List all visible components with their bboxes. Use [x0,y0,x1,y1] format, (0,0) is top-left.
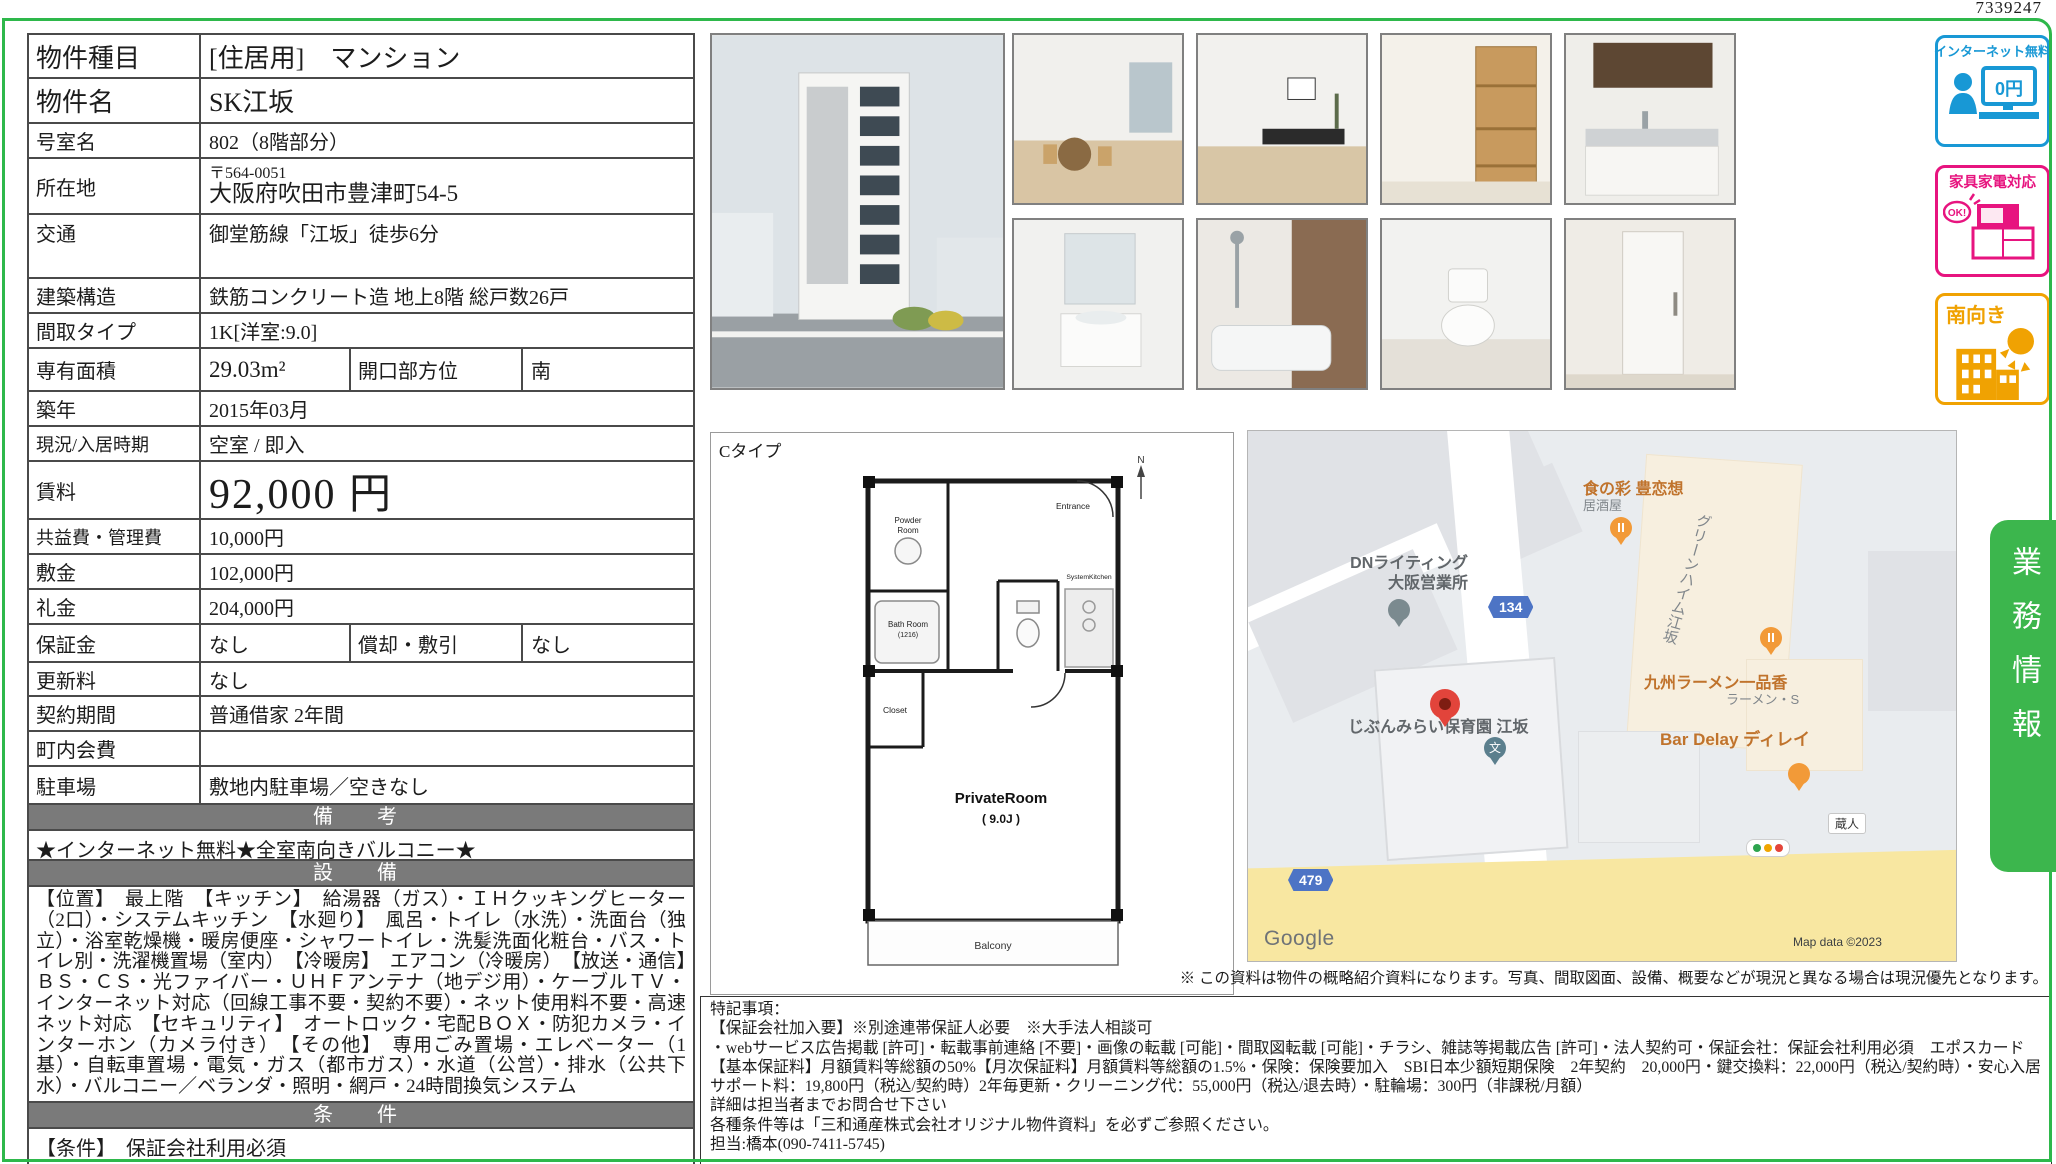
joken-text: 【条件】 保証会社利用必須 [29,1129,693,1164]
row-value [201,732,693,765]
traffic-light-red-dot [1775,844,1783,852]
photo-closet [1380,33,1552,205]
biko-text: ★インターネット無料★全室南向きバルコニー★ [29,831,693,861]
table-row: 保証金 なし 償却・敷引 なし [29,625,693,663]
table-row: 物件種目 [住居用] マンション [29,35,693,79]
row-label: 契約期間 [29,697,201,730]
special-notes-box: 特記事項： 【保証会社加入要】※別途連帯保証人必要 ※大手法人相談可 ・webサ… [700,996,2052,1164]
map-building-property [1374,657,1569,861]
map-label-ramen-sub: ラーメン・S [1726,689,1799,708]
badge-south-facing: 南向き [1935,293,2050,405]
row-value: なし [201,663,693,695]
dn-office-pin-icon [1388,599,1410,621]
notes-line: ・webサービス広告掲載 [許可]・転載事前連絡 [不要]・画像の転載 [可能]… [710,1039,2042,1097]
table-row: 駐車場 敷地内駐車場／空きなし [29,767,693,805]
bar-pin-icon [1788,763,1810,785]
internet-0yen-icon: 0円 [1943,60,2043,132]
row-label: 共益費・管理費 [29,520,201,553]
traffic-light-icon [1746,839,1790,857]
map-label-dn-line2: 大阪営業所 [1306,569,1468,593]
table-row: 号室名 802（8階部分） [29,124,693,159]
table-row: 町内会費 [29,732,693,767]
map-building-block [1868,551,1957,711]
table-row: 共益費・管理費 10,000円 [29,520,693,555]
furniture-ok-icon: OK! [1943,192,2043,264]
svg-text:OK!: OK! [1947,208,1965,219]
address-text: 大阪府吹田市豊津町54-5 [209,182,458,206]
row-value: SK江坂 [201,79,693,122]
photo-kitchen [1564,33,1736,205]
section-header-biko: 備 考 [29,805,693,831]
row-value: 204,000円 [201,590,693,623]
bathroom-art [1198,220,1366,388]
row-label-2: 償却・敷引 [351,625,523,661]
table-row: 築年 2015年03月 [29,392,693,427]
living-room-1-art [1014,35,1182,203]
row-value: 102,000円 [201,555,693,588]
badge-south-label: 南向き [1946,299,2006,328]
table-row: 専有面積 29.03m² 開口部方位 南 [29,349,693,392]
row-label-2: 開口部方位 [351,349,523,390]
svg-text:Room: Room [897,526,919,535]
photo-washbasin [1012,218,1184,390]
notes-line: 【保証会社加入要】※別途連帯保証人必要 ※大手法人相談可 [710,1019,2042,1038]
table-row: 所在地 〒564-0051 大阪府吹田市豊津町54-5 [29,159,693,215]
row-value: 御堂筋線「江坂」徒歩6分 [201,215,693,277]
section-header-joken: 条 件 [29,1103,693,1129]
google-logo: Google [1264,927,1335,951]
row-value-2: 南 [523,349,693,390]
row-value: 空室 / 即入 [201,427,693,460]
izakaya-restaurant-pin-icon [1610,517,1632,539]
badge-internet-free: インターネット無料 0円 [1935,35,2050,147]
notes-line-contact: 担当:橋本(090-7411-5745) [710,1135,2042,1154]
svg-text:N: N [1137,455,1144,466]
school-pin-icon: 文 [1484,737,1506,759]
row-value: 29.03m² [201,349,351,390]
table-row: 敷金 102,000円 [29,555,693,590]
svg-text:SystemKitchen: SystemKitchen [1066,574,1112,581]
photo-bathroom [1196,218,1368,390]
table-row: 賃料 92,000 円 [29,462,693,520]
traffic-light-amber-dot [1764,844,1772,852]
floorplan-type-label: Cタイプ [719,437,781,462]
row-value: [住居用] マンション [201,35,693,77]
badge-furniture-label: 家具家電対応 [1949,171,2036,192]
setsubi-text: 【位置】 最上階 【キッチン】 給湯器（ガス）・ＩＨクッキングヒーター（2口）・… [29,887,693,1103]
row-value-2: なし [523,625,693,661]
document-serial-number: 7339247 [1976,0,2043,18]
property-sheet-page: 7339247 物件種目 [住居用] マンション 物件名 SK江坂 号室名 80… [0,0,2056,1164]
photo-building-exterior [710,33,1005,390]
row-label: 賃料 [29,462,201,518]
row-label: 所在地 [29,159,201,213]
row-label: 保証金 [29,625,201,661]
location-map: DNライティング 大阪営業所 134 食の彩 豊恋想 居酒屋 グリーンハイム江坂… [1247,430,1957,962]
map-attribution: Map data ©2023 [1793,935,1882,949]
postal-code: 〒564-0051 [209,166,286,183]
kitchen-art [1566,35,1734,203]
row-label: 築年 [29,392,201,425]
row-value: 敷地内駐車場／空きなし [201,767,693,803]
row-value: 2015年03月 [201,392,693,425]
row-label: 更新料 [29,663,201,695]
row-label: 敷金 [29,555,201,588]
photo-living-room-2 [1196,33,1368,205]
table-row: 更新料 なし [29,663,693,697]
table-row: 間取タイプ 1K[洋室:9.0] [29,314,693,349]
table-row: 礼金 204,000円 [29,590,693,625]
map-label-kurando: 蔵人 [1828,813,1866,834]
entrance-hall-art [1566,220,1734,388]
row-label: 交通 [29,215,201,277]
badge-furniture-appliance: 家具家電対応 OK! [1935,165,2050,277]
row-label: 号室名 [29,124,201,157]
table-row: 契約期間 普通借家 2年間 [29,697,693,732]
row-label: 駐車場 [29,767,201,803]
washbasin-art [1014,220,1182,388]
svg-text:Balcony: Balcony [974,940,1012,952]
row-value: 鉄筋コンクリート造 地上8階 総戸数26戸 [201,279,693,312]
south-facing-sun-icon [1946,328,2050,400]
table-row: 建築構造 鉄筋コンクリート造 地上8階 総戸数26戸 [29,279,693,314]
photo-toilet [1380,218,1552,390]
svg-text:( 9.0J ): ( 9.0J ) [982,812,1020,826]
rent-value: 92,000 円 [201,462,693,518]
living-room-2-art [1198,35,1366,203]
photo-living-room-1 [1012,33,1184,205]
business-info-label: 業務情報 [2001,520,2045,872]
svg-text:Closet: Closet [883,705,908,715]
map-label-bar-delay: Bar Delay ディレイ [1660,725,1810,750]
svg-text:Entrance: Entrance [1056,501,1090,511]
property-table: 物件種目 [住居用] マンション 物件名 SK江坂 号室名 802（8階部分） … [27,33,695,1164]
row-label: 礼金 [29,590,201,623]
svg-text:(1216): (1216) [898,632,918,639]
svg-text:PrivateRoom: PrivateRoom [955,790,1048,807]
table-row: 交通 御堂筋線「江坂」徒歩6分 [29,215,693,279]
table-row: 現況/入居時期 空室 / 即入 [29,427,693,462]
row-value: 802（8階部分） [201,124,693,157]
ramen-restaurant-pin-icon [1760,627,1782,649]
row-label: 間取タイプ [29,314,201,347]
row-value: なし [201,625,351,661]
notes-line: 特記事項： [710,1000,2042,1019]
row-label: 現況/入居時期 [29,427,201,460]
row-label: 町内会費 [29,732,201,765]
row-label: 物件種目 [29,35,201,77]
row-value: 10,000円 [201,520,693,553]
route-shield-479: 479 [1288,869,1333,891]
business-info-tab: 業務情報 [1990,520,2056,872]
section-header-setsubi: 設 備 [29,861,693,887]
row-label: 建築構造 [29,279,201,312]
svg-text:Powder: Powder [894,516,921,525]
building-exterior-art [712,35,1003,388]
row-value: 〒564-0051 大阪府吹田市豊津町54-5 [201,159,693,213]
map-label-izakaya-sub: 居酒屋 [1583,495,1622,514]
row-label: 物件名 [29,79,201,122]
svg-text:Bath Room: Bath Room [888,620,928,629]
traffic-light-green-dot [1753,844,1761,852]
toilet-art [1382,220,1550,388]
row-value: 普通借家 2年間 [201,697,693,730]
row-value: 1K[洋室:9.0] [201,314,693,347]
property-location-pin-icon [1430,689,1460,719]
row-label: 専有面積 [29,349,201,390]
map-disclaimer-note: ※ この資料は物件の概略紹介資料になります。写真、間取図面、設備、概要などが現況… [700,966,2048,988]
photo-entrance-hall [1564,218,1736,390]
table-row: 物件名 SK江坂 [29,79,693,124]
svg-text:0円: 0円 [1994,79,2022,99]
notes-line: 詳細は担当者までお問合せ下さい [710,1096,2042,1115]
route-shield-134: 134 [1488,596,1533,618]
closet-art [1382,35,1550,203]
notes-line: 各種条件等は「三和通産株式会社オリジナル物件資料」を必ずご参照ください。 [710,1116,2042,1135]
badge-internet-label: インターネット無料 [1934,41,2051,60]
floorplan-drawing: N Balcony [773,451,1173,981]
floorplan-panel: Cタイプ N Balcony [710,432,1234,995]
